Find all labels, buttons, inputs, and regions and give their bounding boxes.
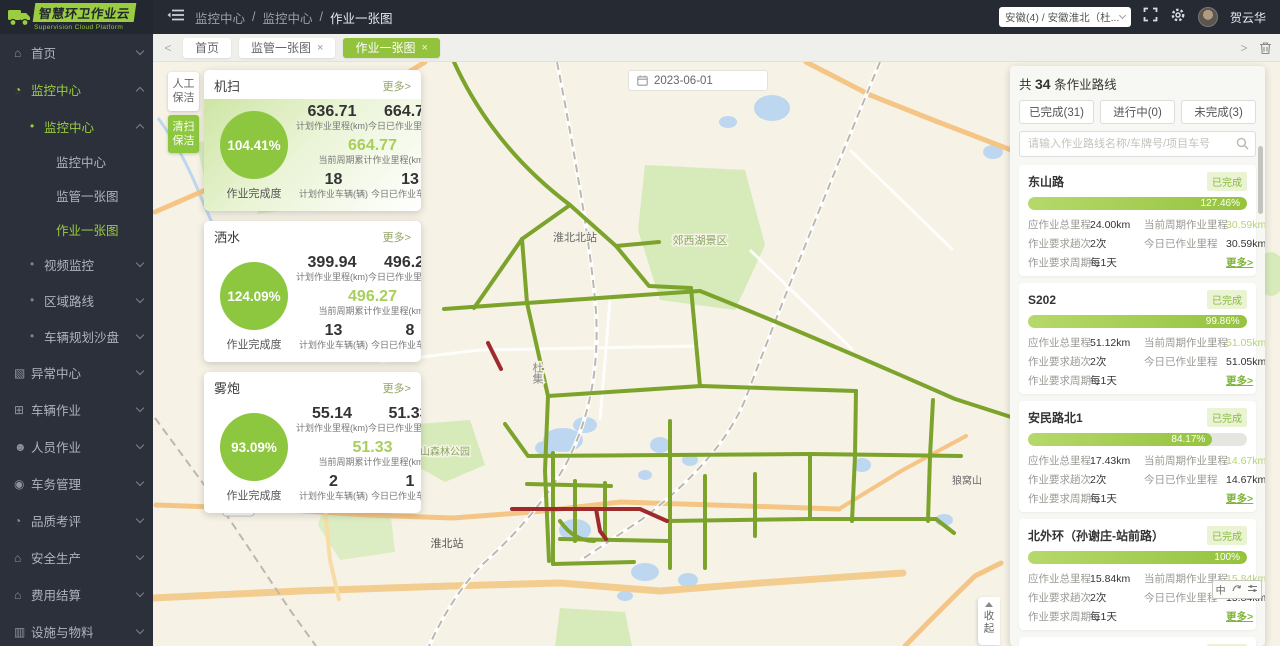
breadcrumb: 监控中心 / 监控中心 / 作业一张图 xyxy=(195,8,393,27)
chevron-down-icon xyxy=(136,404,144,412)
sidebar-item-safety[interactable]: ⌂ 安全生产 xyxy=(0,539,153,576)
breadcrumb-separator: / xyxy=(320,10,323,24)
close-icon[interactable]: × xyxy=(317,42,323,54)
more-link[interactable]: 更多> xyxy=(383,229,411,245)
exception-icon: ▧ xyxy=(14,366,31,380)
stat-card-mechanical-sweep: 机扫 更多> 104.41% 作业完成度 636.71计划作业里程(km) 66… xyxy=(204,70,421,211)
sidebar-item-quality-review[interactable]: ◔ 品质考评 xyxy=(0,502,153,539)
target-icon: ◉ xyxy=(14,477,31,491)
progress-bar: 127.46% xyxy=(1028,197,1247,210)
map-tool-control: 中 xyxy=(1212,580,1262,599)
work-stat-cards: 机扫 更多> 104.41% 作业完成度 636.71计划作业里程(km) 66… xyxy=(204,70,421,523)
logo-title: 智慧环卫作业云 xyxy=(33,3,137,22)
gauge-icon: ◔ xyxy=(14,514,31,528)
chevron-down-icon xyxy=(136,258,144,266)
card-title: 雾炮 xyxy=(214,378,240,397)
sidebar-item-vehicle-work[interactable]: ⊞ 车辆作业 xyxy=(0,391,153,428)
status-badge: 已完成 xyxy=(1207,290,1247,309)
stat-card-fog-cannon: 雾炮 更多> 93.09% 作业完成度 55.14计划作业里程(km) 51.3… xyxy=(204,372,421,513)
completion-circle: 93.09% xyxy=(220,413,288,481)
category-tab-manual-cleaning[interactable]: 人工 保洁 xyxy=(168,72,199,111)
fullscreen-icon[interactable] xyxy=(1143,7,1158,27)
sidebar-item-home[interactable]: ⌂ 首页 xyxy=(0,34,153,71)
gauge-icon: ◔ xyxy=(14,83,31,97)
chevron-down-icon xyxy=(136,515,144,523)
map-label-station-north: 淮北北站 xyxy=(553,230,597,244)
region-select[interactable]: 安徽(4) / 安徽淮北（杜... xyxy=(999,7,1131,27)
map-park-area xyxy=(555,608,632,646)
progress-value: 84.17% xyxy=(1171,434,1205,445)
sidebar-collapse-icon[interactable] xyxy=(167,8,185,27)
route-card[interactable]: 北外环（孙谢庄-站前路） 已完成 100% 应作业总里程15.84km 当前周期… xyxy=(1019,519,1256,630)
sidebar-item-exception-center[interactable]: ▧ 异常中心 xyxy=(0,354,153,391)
region-select-value: 安徽(4) / 安徽淮北（杜... xyxy=(1005,10,1120,25)
chevron-down-icon xyxy=(136,478,144,486)
bus-icon: ⊞ xyxy=(14,403,31,417)
breadcrumb-item[interactable]: 监控中心 xyxy=(195,8,245,27)
tab-home[interactable]: 首页 xyxy=(183,38,231,58)
gear-icon[interactable] xyxy=(1170,7,1186,28)
progress-value: 127.46% xyxy=(1201,198,1240,209)
sidebar-item-personnel-work[interactable]: ☻ 人员作业 xyxy=(0,428,153,465)
page-tab-bar: < 首页 监管一张图 × 作业一张图 × > xyxy=(153,34,1280,62)
breadcrumb-item[interactable]: 监控中心 xyxy=(263,8,313,27)
sidebar-item-monitor-center[interactable]: ◔ 监控中心 xyxy=(0,71,153,108)
chevron-down-icon xyxy=(136,552,144,560)
chevron-down-icon xyxy=(136,441,144,449)
top-bar: 智慧环卫作业云 Supervision Cloud Platform 监控中心 … xyxy=(0,0,1280,34)
bullet-icon: • xyxy=(30,119,44,133)
progress-value: 99.86% xyxy=(1206,316,1240,327)
tabs-scroll-left-icon[interactable]: < xyxy=(161,41,175,55)
category-tab-sweep-cleaning[interactable]: 清扫 保洁 xyxy=(168,115,199,154)
card-title: 机扫 xyxy=(214,76,240,95)
route-list-panel: 共 34 条作业路线 已完成(31) 进行中(0) 未完成(3) 东山路 已完成… xyxy=(1010,66,1265,646)
chevron-down-icon xyxy=(136,294,144,302)
sidebar-item-billing[interactable]: ⌂ 费用结算 xyxy=(0,576,153,613)
search-icon xyxy=(1236,137,1249,150)
route-search-input[interactable] xyxy=(1019,131,1256,157)
sidebar-item-monitor-center-leaf[interactable]: 监控中心 xyxy=(0,144,153,178)
route-name: 安民路北1 xyxy=(1028,409,1083,426)
pan-hand-icon[interactable] xyxy=(1231,581,1242,599)
topbar-right: 安徽(4) / 安徽淮北（杜... 贺云华 xyxy=(999,7,1280,28)
filter-completed[interactable]: 已完成(31) xyxy=(1019,100,1094,124)
chevron-down-icon xyxy=(136,626,144,634)
panel-collapse-button[interactable]: 收起 xyxy=(978,597,1000,645)
route-name: S202 xyxy=(1028,293,1056,307)
date-picker[interactable]: 2023-06-01 xyxy=(628,70,768,91)
card-title: 洒水 xyxy=(214,227,240,246)
progress-bar: 99.86% xyxy=(1028,315,1247,328)
trash-icon[interactable] xyxy=(1259,41,1272,55)
truck-logo-icon xyxy=(6,6,32,28)
breadcrumb-separator: / xyxy=(252,10,255,24)
more-link[interactable]: 更多> xyxy=(383,78,411,94)
route-name: 北外环（孙谢庄-站前路） xyxy=(1028,527,1164,544)
bullet-icon: • xyxy=(30,257,44,271)
breadcrumb-current: 作业一张图 xyxy=(330,8,393,27)
status-badge: 已完成 xyxy=(1207,408,1247,427)
map-label-mountain: 狼窝山 xyxy=(952,474,982,487)
sidebar-item-video-monitor[interactable]: • 视频监控 xyxy=(0,246,153,282)
stat-card-water-spray: 洒水 更多> 124.09% 作业完成度 399.94计划作业里程(km) 49… xyxy=(204,221,421,362)
status-badge: 已完成 xyxy=(1207,526,1247,545)
more-link[interactable]: 更多> xyxy=(383,380,411,396)
tab-supervision-map[interactable]: 监管一张图 × xyxy=(239,38,335,58)
chevron-down-icon xyxy=(1119,12,1126,19)
route-card[interactable]: 东山路 已完成 127.46% 应作业总里程24.00km 当前周期作业里程30… xyxy=(1019,165,1256,276)
chevron-down-icon xyxy=(136,330,144,338)
sidebar-item-vehicle-sandbox[interactable]: • 车辆规划沙盘 xyxy=(0,318,153,354)
shield-icon: ⌂ xyxy=(14,551,31,565)
route-name: 东山路 xyxy=(1028,173,1064,190)
chevron-down-icon xyxy=(136,47,144,55)
route-card[interactable]: 北外环（站前路-梧桐路） 已完成 117.39% 应作业总里程44.79km 当… xyxy=(1019,637,1256,646)
map-label-lake-park: 郊西湖景区 xyxy=(673,234,728,247)
map-label-district: 杜集 xyxy=(531,361,544,384)
filter-not-completed[interactable]: 未完成(3) xyxy=(1181,100,1256,124)
completion-circle: 104.41% xyxy=(220,111,288,179)
route-card[interactable]: 安民路北1 已完成 84.17% 应作业总里程17.43km 当前周期作业里程1… xyxy=(1019,401,1256,512)
completion-circle: 124.09% xyxy=(220,262,288,330)
sidebar-item-area-routes[interactable]: • 区域路线 xyxy=(0,282,153,318)
map-label-station: 淮北站 xyxy=(431,536,464,550)
layers-icon[interactable] xyxy=(1247,581,1258,599)
work-category-tabs: 人工 保洁 清扫 保洁 xyxy=(168,72,199,153)
scrollbar-thumb[interactable] xyxy=(1258,146,1263,214)
sidebar-item-vehicle-mgmt[interactable]: ◉ 车务管理 xyxy=(0,465,153,502)
progress-value: 100% xyxy=(1214,552,1240,563)
chevron-down-icon xyxy=(136,367,144,375)
status-badge: 已完成 xyxy=(1207,172,1247,191)
chevron-down-icon xyxy=(136,589,144,597)
panel-scrollbar[interactable] xyxy=(1258,126,1263,636)
progress-bar: 100% xyxy=(1028,551,1247,564)
sidebar-item-operation-map[interactable]: 作业一张图 xyxy=(0,212,153,246)
language-toggle-icon[interactable]: 中 xyxy=(1216,582,1226,597)
sidebar-item-monitor-center-sub[interactable]: • 监控中心 xyxy=(0,108,153,144)
tab-operation-map[interactable]: 作业一张图 × xyxy=(343,38,439,58)
bullet-icon: • xyxy=(30,293,44,307)
route-count-title: 共 34 条作业路线 xyxy=(1019,74,1256,93)
tabs-scroll-right-icon[interactable]: > xyxy=(1237,41,1251,55)
filter-in-progress[interactable]: 进行中(0) xyxy=(1100,100,1175,124)
building-icon: ▥ xyxy=(14,625,31,639)
route-status-filters: 已完成(31) 进行中(0) 未完成(3) xyxy=(1019,100,1256,124)
sidebar-item-facilities[interactable]: ▥ 设施与物料 xyxy=(0,613,153,646)
route-card[interactable]: S202 已完成 99.86% 应作业总里程51.12km 当前周期作业里程51… xyxy=(1019,283,1256,394)
bullet-icon: • xyxy=(30,329,44,343)
home-icon: ⌂ xyxy=(14,46,31,60)
app-root: 智慧环卫作业云 Supervision Cloud Platform 监控中心 … xyxy=(0,0,1280,646)
triangle-up-icon xyxy=(985,602,993,607)
sidebar-nav: ⌂ 首页 ◔ 监控中心 • 监控中心 监控中心 监管一张图 作业一张图 • 视频… xyxy=(0,34,153,646)
user-avatar[interactable] xyxy=(1198,7,1218,27)
date-value: 2023-06-01 xyxy=(654,75,713,87)
calendar-icon xyxy=(637,75,648,86)
people-icon: ☻ xyxy=(14,440,31,454)
route-count: 34 xyxy=(1035,76,1051,92)
close-icon[interactable]: × xyxy=(421,42,427,54)
sidebar-item-supervision-map[interactable]: 监管一张图 xyxy=(0,178,153,212)
logo-subtitle: Supervision Cloud Platform xyxy=(34,24,135,31)
calculator-icon: ⌂ xyxy=(14,588,31,602)
progress-bar: 84.17% xyxy=(1028,433,1247,446)
chevron-up-icon xyxy=(136,123,144,131)
chevron-up-icon xyxy=(136,87,144,95)
app-logo: 智慧环卫作业云 Supervision Cloud Platform xyxy=(0,0,153,34)
user-name[interactable]: 贺云华 xyxy=(1230,9,1266,26)
